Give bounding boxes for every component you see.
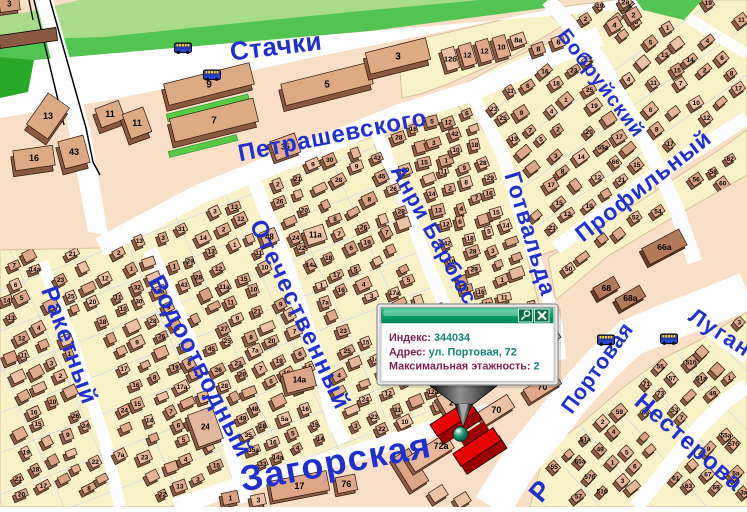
svg-text:8: 8 [249, 335, 253, 342]
svg-text:Адрес: ул. Портовая, 72: Адрес: ул. Портовая, 72 [389, 347, 517, 359]
svg-text:6: 6 [269, 378, 273, 385]
svg-text:55а: 55а [721, 432, 732, 439]
svg-text:14: 14 [502, 223, 510, 230]
svg-text:62: 62 [727, 156, 735, 163]
svg-text:49: 49 [709, 391, 717, 398]
svg-text:52: 52 [632, 214, 640, 221]
svg-text:18: 18 [325, 255, 333, 262]
svg-text:9: 9 [520, 110, 524, 117]
svg-text:12: 12 [18, 335, 26, 342]
svg-text:3: 3 [737, 320, 741, 327]
svg-text:10: 10 [497, 43, 505, 52]
svg-text:12: 12 [385, 390, 393, 397]
svg-text:12: 12 [480, 47, 488, 56]
svg-text:11а: 11а [219, 284, 230, 291]
svg-text:3а: 3а [740, 489, 747, 496]
svg-text:11: 11 [115, 295, 122, 302]
svg-text:11: 11 [394, 407, 401, 414]
svg-text:15: 15 [633, 162, 641, 169]
svg-text:12: 12 [445, 120, 453, 127]
svg-text:7: 7 [528, 128, 532, 135]
svg-text:49: 49 [596, 447, 604, 454]
svg-text:1: 1 [500, 277, 504, 284]
svg-text:2: 2 [556, 127, 560, 134]
svg-text:17: 17 [40, 483, 48, 490]
svg-text:7: 7 [259, 366, 263, 373]
svg-text:3: 3 [213, 209, 217, 216]
svg-text:17а: 17а [389, 290, 400, 297]
svg-text:55а: 55а [575, 459, 586, 466]
svg-text:1: 1 [172, 264, 176, 271]
svg-text:24: 24 [121, 408, 129, 415]
svg-text:16: 16 [338, 287, 346, 294]
svg-text:3: 3 [370, 293, 374, 300]
svg-text:9: 9 [206, 80, 212, 91]
svg-text:1: 1 [666, 25, 670, 32]
svg-text:26: 26 [276, 199, 284, 206]
svg-text:18: 18 [259, 423, 267, 430]
svg-text:25: 25 [224, 338, 232, 345]
svg-text:4: 4 [550, 108, 554, 115]
svg-text:3: 3 [432, 140, 436, 147]
svg-text:18: 18 [471, 142, 479, 149]
svg-text:11: 11 [132, 118, 142, 128]
svg-text:21: 21 [15, 476, 23, 483]
svg-text:Максимальная этажность: 2: Максимальная этажность: 2 [389, 361, 540, 373]
svg-text:24: 24 [362, 397, 370, 404]
svg-text:11а: 11а [309, 231, 322, 240]
svg-text:51б: 51б [686, 359, 697, 367]
svg-text:18: 18 [32, 467, 40, 474]
svg-text:55: 55 [551, 464, 559, 471]
svg-text:4: 4 [627, 76, 631, 83]
svg-text:3: 3 [395, 52, 401, 63]
svg-text:28: 28 [149, 318, 157, 325]
svg-text:5: 5 [291, 431, 295, 438]
svg-text:2: 2 [601, 419, 605, 426]
svg-text:26: 26 [158, 333, 166, 340]
svg-text:20: 20 [301, 208, 309, 215]
svg-text:57б: 57б [584, 473, 595, 481]
svg-text:1: 1 [233, 242, 237, 249]
svg-text:28: 28 [479, 160, 487, 167]
svg-text:5: 5 [430, 119, 434, 126]
svg-text:56: 56 [692, 177, 700, 184]
svg-text:16: 16 [485, 190, 493, 197]
svg-text:15: 15 [362, 339, 370, 346]
svg-text:43: 43 [180, 282, 188, 289]
svg-text:4: 4 [184, 456, 188, 463]
svg-text:1: 1 [564, 97, 568, 104]
svg-text:7а: 7а [251, 348, 259, 355]
svg-text:5: 5 [324, 80, 330, 91]
svg-text:63: 63 [685, 483, 693, 490]
svg-text:3: 3 [554, 153, 558, 160]
svg-text:5: 5 [649, 39, 653, 46]
svg-text:14: 14 [200, 235, 208, 242]
svg-text:10: 10 [250, 287, 258, 294]
svg-text:3: 3 [491, 248, 495, 255]
svg-text:57: 57 [575, 493, 583, 500]
svg-text:3: 3 [196, 476, 200, 483]
svg-text:13: 13 [176, 484, 184, 491]
svg-text:5: 5 [407, 277, 411, 284]
svg-text:12: 12 [237, 216, 245, 223]
svg-text:25: 25 [499, 115, 507, 122]
svg-text:1: 1 [130, 266, 134, 273]
svg-text:55: 55 [657, 364, 665, 371]
svg-text:15: 15 [240, 276, 248, 283]
svg-text:30: 30 [326, 157, 334, 164]
svg-text:12: 12 [101, 276, 109, 283]
svg-text:7а: 7а [117, 452, 125, 459]
svg-text:19: 19 [511, 136, 519, 143]
svg-text:15: 15 [34, 421, 42, 428]
svg-text:8: 8 [464, 179, 468, 186]
svg-text:12: 12 [703, 115, 711, 122]
svg-text:20: 20 [268, 338, 276, 345]
svg-text:15: 15 [674, 67, 682, 74]
svg-text:68а: 68а [623, 293, 637, 303]
svg-text:11: 11 [227, 299, 234, 306]
svg-text:8: 8 [367, 196, 371, 203]
svg-text:48: 48 [251, 406, 259, 413]
svg-text:19: 19 [23, 450, 31, 457]
svg-text:22: 22 [298, 245, 306, 252]
svg-text:28: 28 [469, 248, 477, 255]
svg-text:14: 14 [686, 57, 694, 64]
svg-text:2: 2 [631, 11, 635, 20]
svg-text:15: 15 [311, 422, 319, 429]
svg-text:17: 17 [547, 182, 555, 189]
svg-text:60: 60 [719, 181, 727, 188]
svg-text:2: 2 [222, 227, 226, 234]
svg-text:23: 23 [234, 360, 242, 367]
svg-text:24: 24 [201, 423, 210, 432]
svg-text:5: 5 [539, 137, 543, 144]
svg-text:1: 1 [728, 375, 732, 382]
svg-text:4: 4 [459, 206, 463, 213]
svg-text:8: 8 [87, 485, 91, 492]
svg-text:24: 24 [82, 423, 90, 430]
svg-text:2: 2 [276, 182, 280, 189]
svg-text:21: 21 [69, 251, 77, 258]
svg-text:4: 4 [706, 38, 710, 45]
svg-text:11: 11 [501, 295, 508, 302]
svg-text:6: 6 [14, 282, 18, 289]
svg-text:15: 15 [421, 160, 429, 167]
svg-text:51а: 51а [696, 376, 707, 383]
svg-text:9: 9 [355, 163, 359, 170]
svg-text:13: 13 [43, 111, 53, 121]
svg-text:20: 20 [18, 491, 26, 498]
svg-text:2: 2 [448, 185, 452, 192]
svg-text:24: 24 [292, 235, 300, 242]
svg-text:9: 9 [236, 316, 240, 323]
svg-text:13: 13 [231, 204, 239, 211]
svg-text:6: 6 [720, 55, 724, 62]
svg-text:9: 9 [311, 161, 315, 168]
svg-text:8: 8 [730, 70, 734, 77]
svg-text:68: 68 [602, 283, 612, 293]
svg-text:14а: 14а [30, 266, 41, 273]
svg-text:2: 2 [59, 373, 63, 380]
svg-text:17: 17 [333, 272, 341, 279]
svg-text:7а: 7а [322, 299, 330, 306]
svg-text:17а: 17а [177, 384, 188, 391]
svg-text:16: 16 [302, 406, 310, 413]
svg-text:21: 21 [294, 176, 302, 183]
svg-text:12: 12 [215, 266, 223, 273]
svg-text:18: 18 [99, 319, 107, 326]
svg-text:7: 7 [679, 80, 683, 87]
svg-text:5: 5 [354, 266, 358, 273]
svg-text:42: 42 [451, 131, 459, 138]
svg-text:45: 45 [378, 174, 386, 181]
svg-text:1: 1 [611, 459, 615, 466]
svg-text:9: 9 [135, 339, 139, 346]
svg-text:20: 20 [586, 129, 594, 136]
svg-text:25: 25 [344, 348, 352, 355]
svg-text:58: 58 [710, 169, 718, 176]
svg-text:25: 25 [67, 293, 75, 300]
svg-text:10: 10 [401, 419, 409, 426]
svg-text:23: 23 [340, 328, 348, 335]
svg-text:13: 13 [136, 238, 144, 245]
svg-text:6: 6 [349, 245, 353, 252]
svg-text:54: 54 [654, 208, 662, 215]
svg-text:17: 17 [120, 366, 128, 373]
svg-text:28: 28 [335, 177, 343, 184]
svg-text:26: 26 [72, 413, 80, 420]
svg-text:15: 15 [555, 200, 563, 207]
svg-text:11: 11 [650, 80, 657, 87]
svg-text:5: 5 [487, 229, 491, 236]
svg-text:66: 66 [612, 159, 620, 166]
svg-text:51а: 51а [580, 436, 591, 443]
svg-text:14: 14 [428, 191, 436, 198]
svg-text:14: 14 [317, 436, 325, 443]
svg-text:30: 30 [135, 298, 143, 305]
svg-text:43: 43 [69, 147, 79, 157]
svg-text:20: 20 [239, 372, 247, 379]
svg-text:9: 9 [66, 432, 70, 439]
svg-text:7: 7 [385, 230, 389, 237]
svg-text:1: 1 [228, 495, 232, 502]
svg-text:12: 12 [463, 51, 471, 60]
svg-text:18: 18 [466, 235, 474, 242]
svg-text:14: 14 [577, 154, 585, 161]
svg-text:3: 3 [50, 360, 54, 367]
svg-text:29: 29 [487, 175, 495, 182]
svg-text:4: 4 [37, 325, 41, 332]
svg-text:15: 15 [134, 401, 142, 408]
svg-text:11: 11 [20, 353, 27, 360]
svg-text:20: 20 [89, 299, 97, 306]
svg-text:6: 6 [649, 107, 653, 114]
svg-text:29: 29 [187, 259, 195, 266]
svg-text:14а: 14а [293, 376, 307, 385]
svg-text:14: 14 [3, 297, 11, 304]
svg-text:6: 6 [465, 111, 469, 118]
svg-text:27: 27 [220, 326, 228, 333]
svg-text:12б: 12б [444, 55, 457, 64]
svg-text:31: 31 [178, 226, 186, 233]
svg-text:16: 16 [29, 153, 39, 163]
svg-text:8: 8 [153, 374, 157, 381]
svg-text:13: 13 [661, 52, 669, 59]
svg-text:11: 11 [440, 169, 447, 176]
svg-text:7: 7 [475, 195, 479, 202]
svg-text:10: 10 [49, 399, 57, 406]
svg-text:3: 3 [256, 497, 260, 504]
svg-text:43: 43 [373, 155, 381, 162]
svg-text:8а: 8а [514, 36, 523, 45]
svg-text:26: 26 [360, 224, 368, 231]
svg-text:2а: 2а [621, 0, 630, 7]
svg-text:16: 16 [30, 410, 38, 417]
svg-text:66а: 66а [657, 242, 671, 252]
svg-text:19: 19 [364, 239, 372, 246]
svg-text:8: 8 [655, 126, 659, 133]
svg-text:6: 6 [298, 351, 302, 358]
svg-text:28: 28 [398, 208, 406, 215]
svg-text:16: 16 [541, 68, 549, 75]
svg-text:5: 5 [20, 295, 24, 302]
svg-text:10: 10 [693, 100, 701, 107]
svg-text:10: 10 [120, 306, 128, 313]
svg-text:Индекс: 344034: Индекс: 344034 [389, 332, 470, 344]
svg-text:23: 23 [141, 454, 149, 461]
svg-text:4: 4 [362, 281, 366, 288]
svg-text:32: 32 [134, 284, 142, 291]
svg-text:1: 1 [444, 157, 448, 164]
svg-text:21: 21 [254, 308, 262, 315]
svg-text:23: 23 [490, 106, 498, 113]
svg-text:6: 6 [458, 219, 462, 226]
svg-text:3: 3 [7, 0, 12, 9]
svg-text:22: 22 [159, 491, 167, 498]
svg-text:17: 17 [616, 134, 624, 141]
svg-text:57: 57 [669, 375, 677, 382]
svg-text:3: 3 [354, 423, 358, 430]
svg-text:23: 23 [371, 414, 379, 421]
svg-text:7: 7 [211, 116, 217, 127]
svg-text:1: 1 [320, 282, 324, 289]
svg-text:11: 11 [105, 109, 115, 119]
svg-text:29: 29 [471, 267, 479, 274]
svg-text:10: 10 [452, 147, 460, 154]
svg-text:8: 8 [536, 45, 540, 54]
svg-text:72а: 72а [433, 441, 449, 451]
svg-text:28: 28 [195, 274, 203, 281]
svg-text:59: 59 [616, 409, 624, 416]
svg-text:5а: 5а [281, 416, 289, 423]
svg-text:57б: 57б [728, 440, 739, 448]
svg-text:51б: 51б [597, 488, 608, 496]
svg-text:19: 19 [591, 103, 599, 110]
svg-text:16: 16 [269, 439, 277, 446]
svg-text:55а: 55а [597, 144, 608, 151]
svg-text:4: 4 [612, 429, 616, 436]
svg-text:5: 5 [625, 449, 629, 456]
svg-text:18: 18 [553, 80, 561, 87]
svg-text:2: 2 [703, 68, 707, 75]
svg-text:3: 3 [161, 235, 165, 242]
svg-text:19: 19 [596, 3, 604, 10]
svg-text:22: 22 [92, 459, 100, 466]
svg-text:15: 15 [213, 462, 221, 469]
svg-text:21: 21 [549, 225, 557, 232]
svg-text:19: 19 [171, 365, 179, 372]
svg-text:17: 17 [735, 85, 743, 92]
svg-text:7: 7 [169, 408, 173, 415]
svg-text:15: 15 [492, 210, 500, 217]
svg-text:9: 9 [462, 165, 466, 172]
svg-text:13: 13 [208, 249, 216, 256]
svg-text:70: 70 [491, 405, 501, 415]
svg-text:13: 13 [7, 315, 15, 322]
svg-text:2: 2 [117, 250, 121, 257]
svg-text:7: 7 [337, 231, 341, 238]
svg-text:14а: 14а [306, 262, 317, 269]
svg-text:50: 50 [565, 266, 573, 273]
svg-text:8: 8 [561, 169, 565, 176]
svg-text:3: 3 [621, 478, 625, 485]
svg-text:11: 11 [738, 17, 745, 24]
svg-text:11: 11 [507, 88, 514, 95]
svg-text:5: 5 [182, 437, 186, 444]
svg-text:19: 19 [705, 0, 713, 7]
svg-text:6: 6 [526, 83, 530, 90]
svg-text:19: 19 [276, 358, 284, 365]
svg-text:13: 13 [564, 211, 572, 218]
svg-text:61: 61 [672, 475, 680, 482]
svg-text:12: 12 [594, 174, 602, 181]
svg-text:6: 6 [177, 423, 181, 430]
svg-text:14: 14 [146, 418, 154, 425]
svg-text:8: 8 [333, 216, 337, 223]
svg-text:6: 6 [633, 464, 637, 471]
svg-text:16: 16 [132, 382, 140, 389]
svg-text:7: 7 [12, 263, 16, 270]
svg-text:2: 2 [584, 16, 588, 23]
